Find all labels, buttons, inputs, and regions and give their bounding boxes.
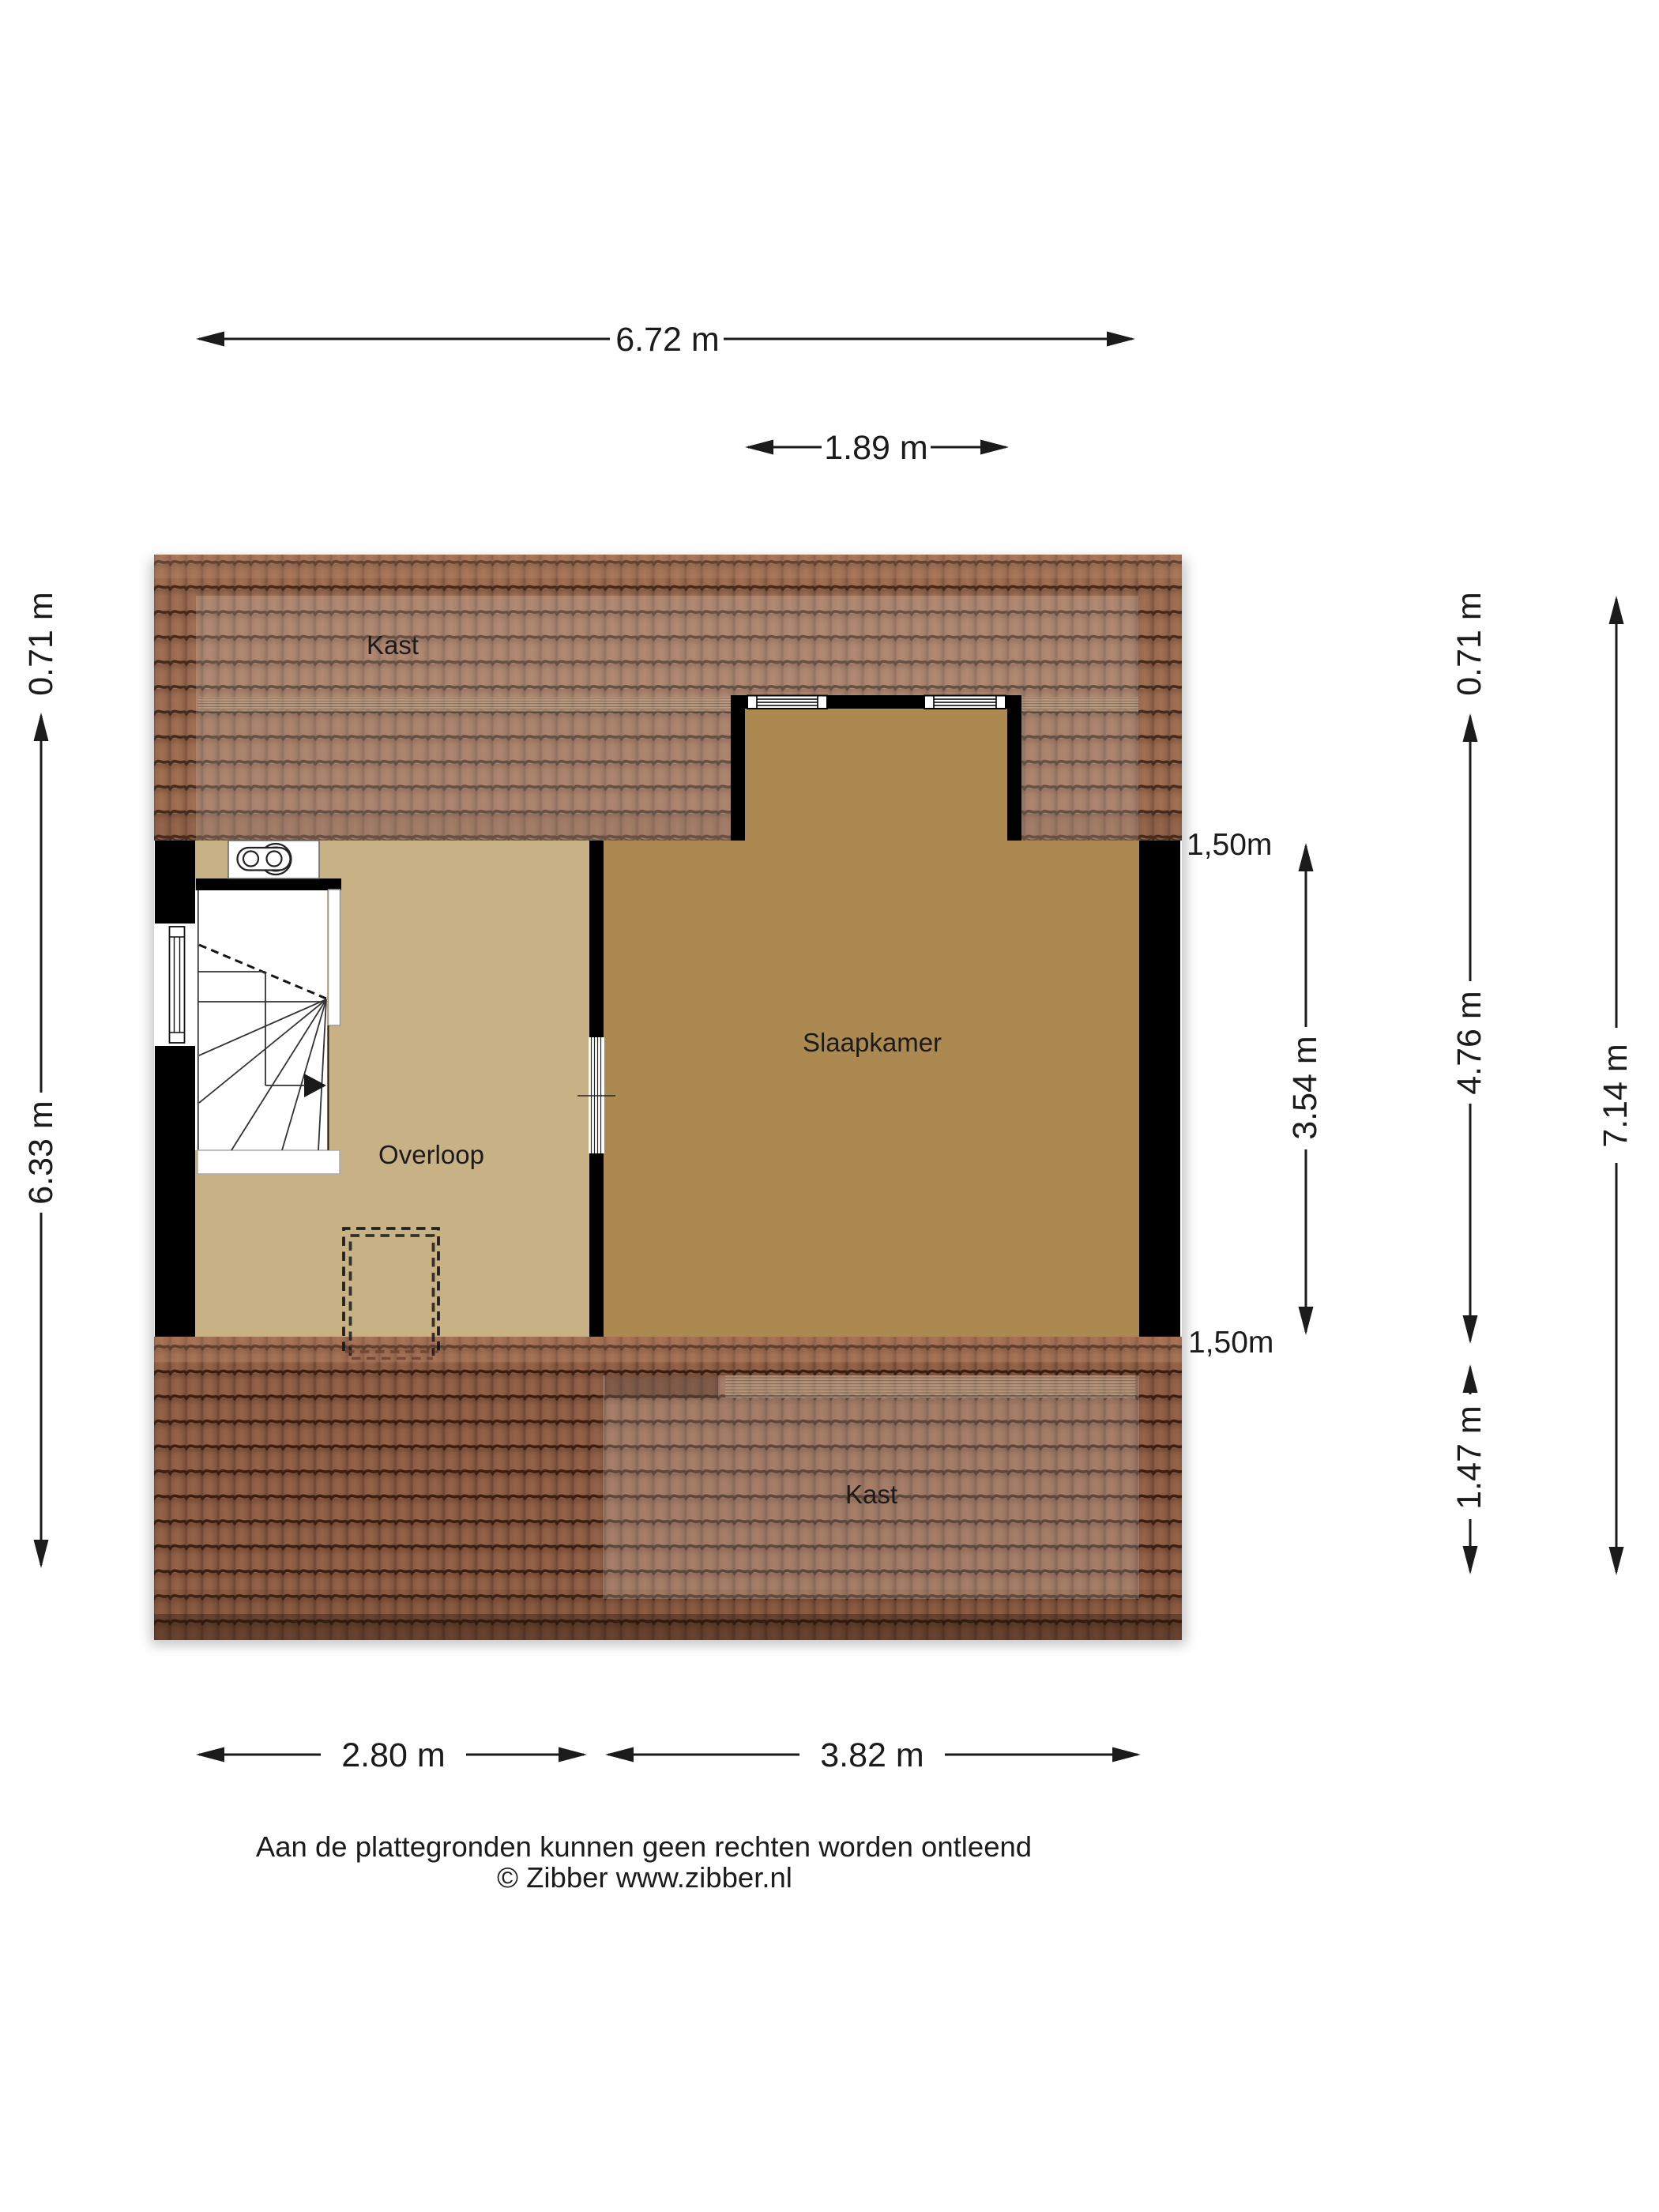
svg-text:© Zibber www.zibber.nl: © Zibber www.zibber.nl bbox=[497, 1861, 792, 1894]
svg-text:6.33 m: 6.33 m bbox=[22, 1100, 60, 1204]
svg-text:3.54 m: 3.54 m bbox=[1286, 1036, 1324, 1139]
svg-text:Aan de plattegronden kunnen ge: Aan de plattegronden kunnen geen rechten… bbox=[256, 1830, 1032, 1863]
svg-text:3.82 m: 3.82 m bbox=[820, 1736, 924, 1774]
svg-text:7.14 m: 7.14 m bbox=[1597, 1044, 1635, 1147]
svg-text:0.71 m: 0.71 m bbox=[22, 592, 60, 695]
svg-text:Kast: Kast bbox=[367, 630, 419, 660]
svg-text:2.80 m: 2.80 m bbox=[341, 1736, 445, 1774]
svg-text:1.89 m: 1.89 m bbox=[824, 429, 927, 467]
svg-text:1.47 m: 1.47 m bbox=[1450, 1405, 1488, 1509]
svg-text:1,50m: 1,50m bbox=[1188, 1326, 1273, 1360]
svg-text:4.76 m: 4.76 m bbox=[1450, 991, 1488, 1094]
svg-text:6.72 m: 6.72 m bbox=[615, 321, 719, 359]
svg-text:Slaapkamer: Slaapkamer bbox=[803, 1028, 942, 1057]
svg-text:Overloop: Overloop bbox=[378, 1140, 484, 1169]
svg-text:0.71 m: 0.71 m bbox=[1450, 592, 1488, 695]
svg-text:Kast: Kast bbox=[845, 1480, 897, 1509]
svg-text:1,50m: 1,50m bbox=[1187, 828, 1272, 862]
